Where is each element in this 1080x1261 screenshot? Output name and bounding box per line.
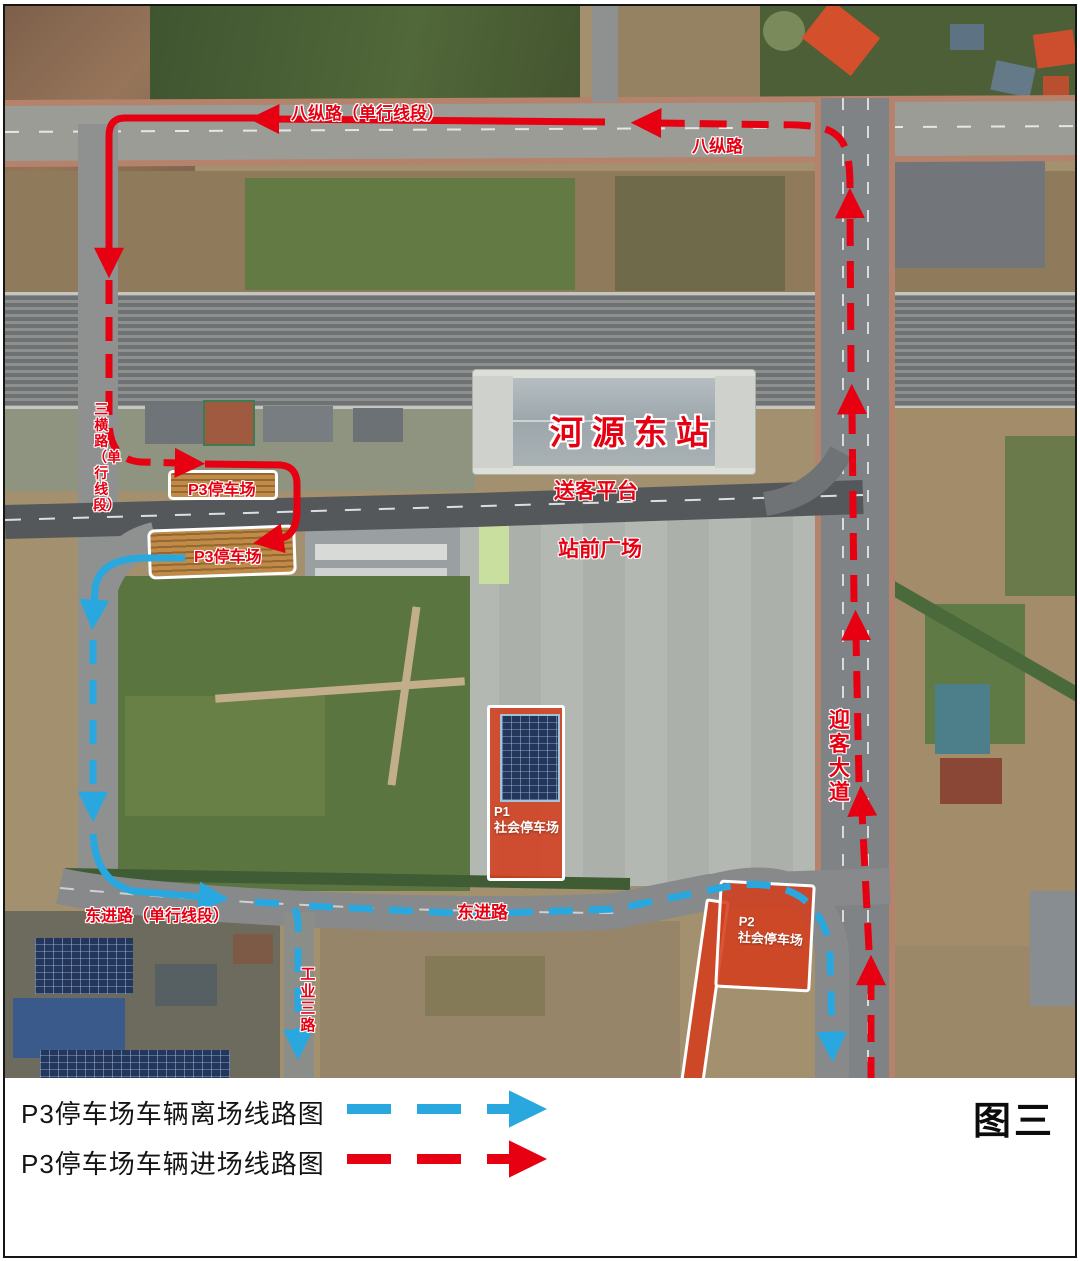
entry-route <box>109 118 871 1078</box>
songke-platform-label: 送客平台 <box>554 475 638 505</box>
road-label-bazong: 八纵路 <box>692 132 743 157</box>
legend-arrows <box>335 1078 955 1208</box>
p3-upper-label: P3停车场 <box>188 476 256 500</box>
legend-entry-label: P3停车场车辆进场线路图 <box>21 1144 325 1181</box>
exit-route-segment <box>93 834 203 897</box>
entry-route-segment <box>862 812 869 950</box>
legend: P3停车场车辆离场线路图 P3停车场车辆进场线路图 图三 <box>5 1078 1075 1256</box>
station-name-label: 河源东站 <box>550 406 718 454</box>
road-label-dongjin: 东进路 <box>457 898 508 923</box>
figure-frame: P1 社会停车场 P2 社会停车场 <box>3 4 1077 1258</box>
road-label-sanheng-oneway: 三横路（单行线段） <box>93 402 110 514</box>
legend-exit-label: P3停车场车辆离场线路图 <box>21 1094 325 1131</box>
entry-route-segment <box>850 214 851 372</box>
p3-lower-label: P3停车场 <box>194 543 262 567</box>
entry-route-segment <box>657 123 850 188</box>
road-label-bazong-oneway: 八纵路（单行线段） <box>291 99 444 124</box>
figure-number-label: 图三 <box>973 1090 1055 1145</box>
exit-route <box>93 558 832 1036</box>
road-label-yingke: 迎客大道 <box>827 709 852 805</box>
entry-route-segment <box>852 410 854 602</box>
exit-route-segment <box>94 558 185 604</box>
road-label-gongye: 工业三路 <box>299 966 317 1034</box>
road-label-dongjin-oneway: 东进路（单行线段） <box>85 902 229 926</box>
entry-route-segment <box>109 118 257 252</box>
entry-route-segment <box>109 280 179 463</box>
exit-route-segment <box>255 902 298 1034</box>
zhanqian-plaza-label: 站前广场 <box>558 533 642 563</box>
entry-route-segment <box>856 636 859 782</box>
exit-route-segment <box>309 885 832 1036</box>
satellite-map: P1 社会停车场 P2 社会停车场 <box>5 6 1075 1078</box>
